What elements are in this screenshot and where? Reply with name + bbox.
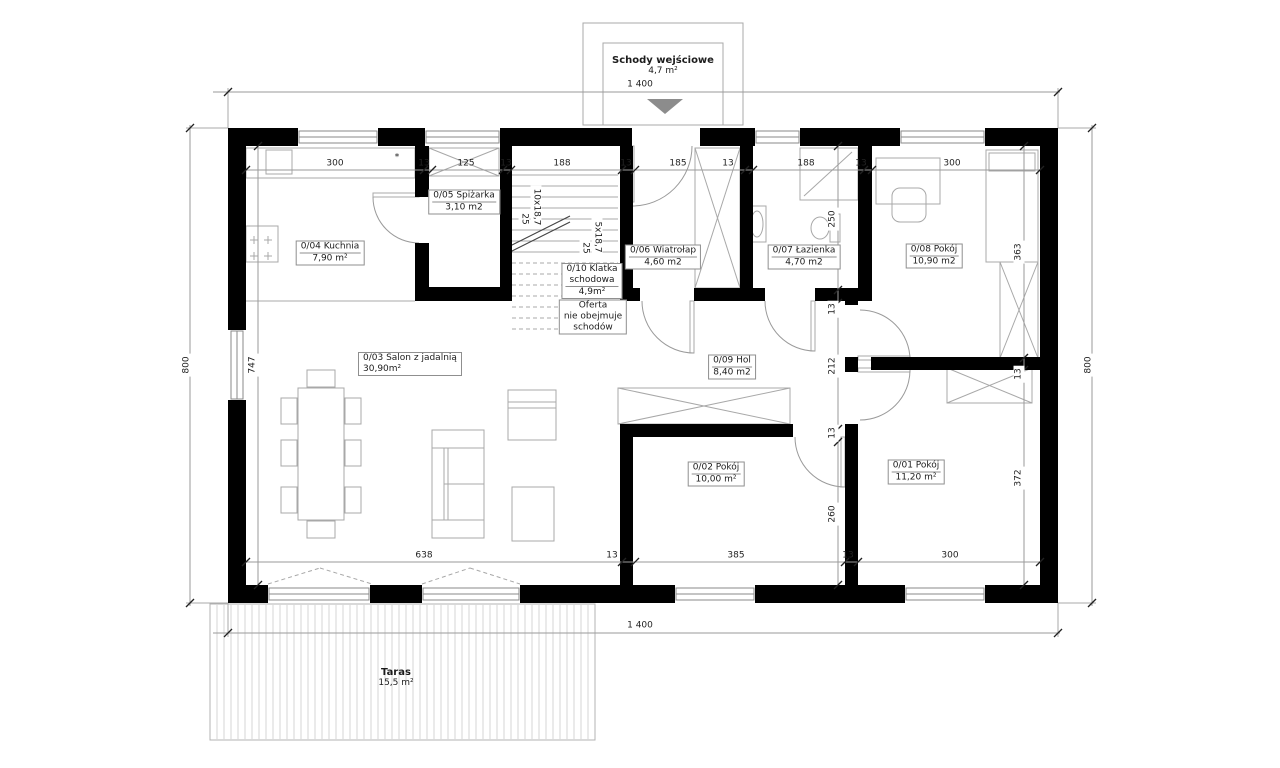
dim-label: 13 — [417, 159, 430, 170]
label-line: nie obejmuje — [563, 312, 623, 323]
dimension-value: 363 — [1014, 242, 1025, 261]
label-line: schodów — [563, 323, 623, 334]
dimension-value: 13 — [417, 159, 430, 170]
label-line: Oferta — [563, 301, 623, 312]
label-line: Taras — [377, 667, 414, 678]
label-line: 4,70 m2 — [772, 257, 837, 269]
dim-label: 638 — [414, 551, 433, 562]
room-label-spizarka: 0/05 Spiżarka3,10 m2 — [428, 190, 500, 215]
label-line: 15,5 m² — [377, 678, 414, 689]
dim-label: 13 — [828, 300, 839, 317]
dimension-value: 260 — [828, 504, 839, 523]
dim-label: 300 — [940, 551, 959, 562]
label-line: 4,9m² — [565, 286, 618, 298]
dimension-value: 300 — [942, 159, 961, 170]
label-line: 0/04 Kuchnia — [300, 242, 361, 253]
dimension-value: 212 — [828, 356, 839, 375]
room-label-wiatrolap: 0/06 Wiatrołap4,60 m2 — [625, 245, 701, 270]
label-line: 0/05 Spiżarka — [432, 191, 496, 202]
dimension-value: 13 — [828, 302, 839, 315]
dim-label: 125 — [456, 159, 475, 170]
dim-label: 1 400 — [626, 621, 654, 632]
dimension-value: 13 — [1014, 367, 1025, 380]
label-line: 0/10 Klatka — [565, 264, 618, 275]
dimension-value: 13 — [721, 159, 734, 170]
dim-label: 212 — [828, 354, 839, 377]
dim-label: 13 — [619, 159, 632, 170]
dimension-value: 13 — [499, 159, 512, 170]
dimension-value: 13 — [841, 551, 854, 562]
room-label-lazienka: 0/07 Łazienka4,70 m2 — [768, 245, 841, 270]
room-label-pokoj-02: 0/02 Pokój10,00 m² — [688, 462, 745, 487]
room-label-salon: 0/03 Salon z jadalnią30,90m² — [358, 352, 462, 376]
dimension-value: 188 — [796, 159, 815, 170]
terrace-label: Taras15,5 m² — [377, 667, 414, 689]
label-line: 30,90m² — [362, 364, 458, 375]
dimension-value: 800 — [1084, 355, 1095, 374]
dim-label: 300 — [325, 159, 344, 170]
room-label-hol: 0/09 Hol8,40 m2 — [708, 355, 756, 380]
label-line: 11,20 m² — [892, 472, 941, 484]
dimension-value: 10x18,7 — [531, 188, 542, 227]
dimension-value: 372 — [1014, 468, 1025, 487]
dimension-value: 188 — [552, 159, 571, 170]
label-line: 0/07 Łazienka — [772, 246, 837, 257]
label-line: Schody wejściowe — [611, 55, 715, 66]
dim-label: 800 — [1084, 353, 1095, 376]
dim-label: 188 — [552, 159, 571, 170]
label-line: * — [394, 153, 401, 164]
dimension-value: 185 — [668, 159, 687, 170]
dim-label: 10x18,7 — [531, 186, 542, 229]
dimension-value: 13 — [605, 551, 618, 562]
room-label-pokoj-01: 0/01 Pokój11,20 m² — [888, 460, 945, 485]
room-label-kuchnia: 0/04 Kuchnia7,90 m² — [296, 241, 365, 266]
dim-label: 363 — [1014, 240, 1025, 263]
dim-label: 185 — [668, 159, 687, 170]
label-line: 0/09 Hol — [712, 356, 752, 367]
floor-plan-labels: Schody wejściowe4,7 m²0/04 Kuchnia7,90 m… — [0, 0, 1280, 768]
room-label-pokoj-08: 0/08 Pokój10,90 m2 — [906, 244, 963, 269]
dim-label: 25 — [580, 239, 591, 256]
dim-label: 13 — [841, 551, 854, 562]
label-line: 10,00 m² — [692, 474, 741, 486]
label-line: 4,7 m² — [611, 66, 715, 77]
dim-label: 25 — [519, 210, 530, 227]
dim-label: 250 — [828, 207, 839, 230]
label-line: 10,90 m2 — [910, 256, 959, 268]
label-line: 4,60 m2 — [629, 257, 697, 269]
dim-label: 800 — [182, 353, 193, 376]
label-line: 0/08 Pokój — [910, 245, 959, 256]
dimension-value: 25 — [519, 212, 530, 225]
label-line: 7,90 m² — [300, 253, 361, 265]
label-line: 0/02 Pokój — [692, 463, 741, 474]
dimension-value: 300 — [940, 551, 959, 562]
floor-plan-canvas: Schody wejściowe4,7 m²0/04 Kuchnia7,90 m… — [0, 0, 1280, 768]
dimension-value: 800 — [182, 355, 193, 374]
dimension-value: 250 — [828, 209, 839, 228]
dim-label: 13 — [499, 159, 512, 170]
dimension-value: 300 — [325, 159, 344, 170]
dim-label: 372 — [1014, 466, 1025, 489]
dimension-value: 1 400 — [626, 621, 654, 632]
label-line: 0/01 Pokój — [892, 461, 941, 472]
dimension-value: 5x18,7 — [592, 220, 603, 253]
dim-label: 300 — [942, 159, 961, 170]
dimension-value: 13 — [828, 426, 839, 439]
room-label-klatka-schodowa: 0/10 Klatkaschodowa4,9m² — [561, 263, 622, 299]
dim-label: 13 — [721, 159, 734, 170]
dimension-value: 747 — [248, 355, 259, 374]
dim-label: 13 — [605, 551, 618, 562]
dimension-value: 385 — [726, 551, 745, 562]
dim-label: 385 — [726, 551, 745, 562]
dim-label: 188 — [796, 159, 815, 170]
entrance-stairs-label: Schody wejściowe4,7 m² — [611, 55, 715, 77]
dimension-value: 13 — [854, 159, 867, 170]
label-line: 0/03 Salon z jadalnią — [362, 353, 458, 364]
dim-label: 13 — [854, 159, 867, 170]
label-line: 0/06 Wiatrołap — [629, 246, 697, 257]
label-line: 8,40 m2 — [712, 367, 752, 379]
dimension-value: 125 — [456, 159, 475, 170]
dimension-value: 638 — [414, 551, 433, 562]
dimension-value: 13 — [619, 159, 632, 170]
stairs-note: Ofertanie obejmujeschodów — [559, 300, 627, 335]
dim-label: 260 — [828, 502, 839, 525]
dimension-value: 1 400 — [626, 80, 654, 91]
label-line: schodowa — [565, 275, 618, 286]
dim-label: 13 — [828, 424, 839, 441]
label-line: 3,10 m2 — [432, 202, 496, 214]
dim-label: 1 400 — [626, 80, 654, 91]
dim-label: 13 — [1014, 365, 1025, 382]
dim-label: 747 — [248, 353, 259, 376]
wall-asterisk-note: * — [394, 153, 401, 164]
dimension-value: 25 — [580, 241, 591, 254]
dim-label: 5x18,7 — [592, 218, 603, 255]
